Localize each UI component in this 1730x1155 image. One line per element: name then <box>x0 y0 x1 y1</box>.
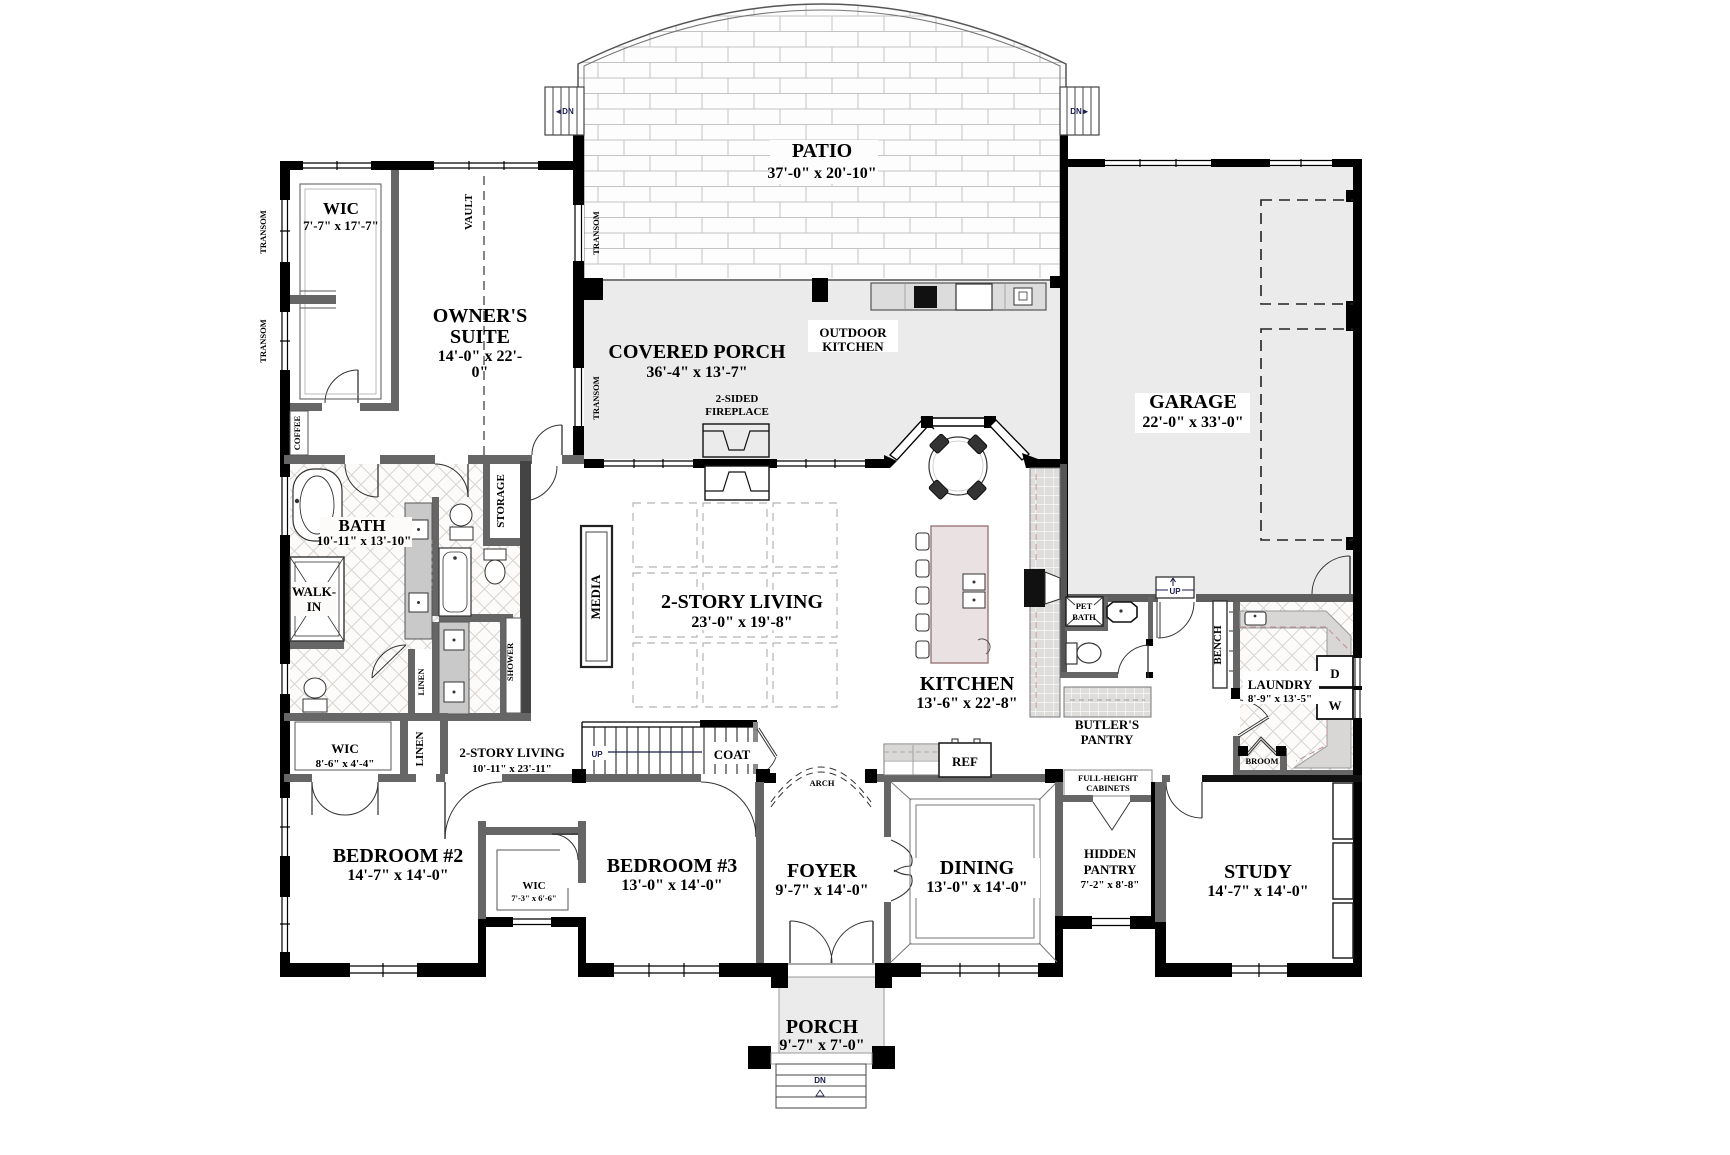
svg-text:PANTRY: PANTRY <box>1084 862 1137 877</box>
svg-text:STORAGE: STORAGE <box>495 474 507 528</box>
svg-text:PET: PET <box>1076 601 1093 611</box>
svg-text:PANTRY: PANTRY <box>1081 732 1134 747</box>
svg-text:10'-11" x 13'-10": 10'-11" x 13'-10" <box>317 533 412 548</box>
svg-text:LINEN: LINEN <box>414 732 426 767</box>
svg-text:DN: DN <box>814 1076 826 1085</box>
svg-text:22'-0" x 33'-0": 22'-0" x 33'-0" <box>1142 414 1243 431</box>
svg-text:◄DN: ◄DN <box>554 107 574 116</box>
svg-text:2-SIDED: 2-SIDED <box>716 393 759 405</box>
svg-text:W: W <box>1329 698 1342 713</box>
svg-text:SUITE: SUITE <box>450 326 510 348</box>
svg-text:37'-0" x 20'-10": 37'-0" x 20'-10" <box>767 165 876 182</box>
svg-text:LAUNDRY: LAUNDRY <box>1248 677 1313 692</box>
svg-text:TRANSOM: TRANSOM <box>591 376 601 419</box>
svg-text:GARAGE: GARAGE <box>1149 391 1237 413</box>
svg-text:WIC: WIC <box>522 880 545 892</box>
svg-text:KITCHEN: KITCHEN <box>822 339 884 354</box>
svg-text:2-STORY LIVING: 2-STORY LIVING <box>661 591 824 613</box>
svg-text:TRANSOM: TRANSOM <box>591 211 601 254</box>
svg-text:BUTLER'S: BUTLER'S <box>1075 717 1139 732</box>
svg-text:LINEN: LINEN <box>416 668 426 696</box>
svg-text:COAT: COAT <box>714 747 751 762</box>
svg-text:COFFEE: COFFEE <box>292 415 302 450</box>
svg-text:14'-7" x 14'-0": 14'-7" x 14'-0" <box>1207 883 1308 900</box>
svg-text:STUDY: STUDY <box>1224 861 1292 883</box>
svg-text:23'-0" x 19'-8": 23'-0" x 19'-8" <box>691 614 792 631</box>
svg-text:BEDROOM #2: BEDROOM #2 <box>333 845 464 867</box>
svg-text:FOYER: FOYER <box>787 860 858 882</box>
svg-text:13'-6" x 22'-8": 13'-6" x 22'-8" <box>916 695 1017 712</box>
svg-text:8'-6" x 4'-4": 8'-6" x 4'-4" <box>316 758 375 770</box>
svg-text:IN: IN <box>307 599 322 614</box>
svg-text:7'-7" x 17'-7": 7'-7" x 17'-7" <box>303 218 379 233</box>
svg-text:UP: UP <box>591 750 603 759</box>
svg-text:VAULT: VAULT <box>463 193 475 230</box>
svg-text:13'-0" x 14'-0": 13'-0" x 14'-0" <box>926 879 1027 896</box>
svg-text:36'-4" x 13'-7": 36'-4" x 13'-7" <box>646 364 747 381</box>
svg-text:7'-3" x 6'-6": 7'-3" x 6'-6" <box>511 893 556 903</box>
svg-text:CABINETS: CABINETS <box>1086 783 1130 793</box>
svg-text:KITCHEN: KITCHEN <box>920 673 1015 695</box>
svg-text:D: D <box>1330 666 1339 681</box>
svg-text:10'-11" x 23'-11": 10'-11" x 23'-11" <box>472 763 551 775</box>
svg-text:HIDDEN: HIDDEN <box>1084 846 1137 861</box>
svg-text:14'-0" x 22'-: 14'-0" x 22'- <box>438 348 522 365</box>
svg-text:14'-7" x 14'-0": 14'-7" x 14'-0" <box>347 867 448 884</box>
svg-text:COVERED PORCH: COVERED PORCH <box>608 341 786 363</box>
svg-text:BATH: BATH <box>1072 612 1096 622</box>
svg-text:BROOM: BROOM <box>1245 756 1278 766</box>
svg-text:9'-7" x 7'-0": 9'-7" x 7'-0" <box>779 1037 864 1054</box>
svg-text:BEDROOM #3: BEDROOM #3 <box>607 855 738 877</box>
svg-text:TRANSOM: TRANSOM <box>258 210 268 253</box>
svg-text:TRANSOM: TRANSOM <box>258 319 268 362</box>
svg-text:0": 0" <box>472 364 489 381</box>
svg-text:WIC: WIC <box>331 741 358 756</box>
svg-text:UP: UP <box>1169 587 1181 596</box>
svg-text:13'-0" x 14'-0": 13'-0" x 14'-0" <box>621 877 722 894</box>
svg-text:REF: REF <box>952 754 978 769</box>
svg-text:8'-9" x 13'-5": 8'-9" x 13'-5" <box>1248 693 1312 705</box>
svg-text:PORCH: PORCH <box>786 1016 859 1038</box>
svg-text:9'-7" x 14'-0": 9'-7" x 14'-0" <box>775 882 868 899</box>
svg-text:DN►: DN► <box>1070 107 1089 116</box>
svg-text:DINING: DINING <box>940 857 1015 879</box>
svg-text:SHOWER: SHOWER <box>505 642 515 681</box>
svg-text:7'-2" x 8'-8": 7'-2" x 8'-8" <box>1081 879 1140 891</box>
svg-text:WALK-: WALK- <box>292 584 336 599</box>
svg-text:WIC: WIC <box>323 199 359 218</box>
svg-text:ARCH: ARCH <box>809 778 834 788</box>
svg-text:2-STORY LIVING: 2-STORY LIVING <box>459 745 564 760</box>
svg-text:FULL-HEIGHT: FULL-HEIGHT <box>1078 773 1138 783</box>
svg-text:OUTDOOR: OUTDOOR <box>819 325 887 340</box>
svg-text:MEDIA: MEDIA <box>588 574 603 619</box>
svg-text:BENCH: BENCH <box>1212 625 1224 665</box>
svg-text:OWNER'S: OWNER'S <box>433 305 527 327</box>
svg-text:FIREPLACE: FIREPLACE <box>705 406 769 418</box>
svg-text:PATIO: PATIO <box>792 140 852 162</box>
